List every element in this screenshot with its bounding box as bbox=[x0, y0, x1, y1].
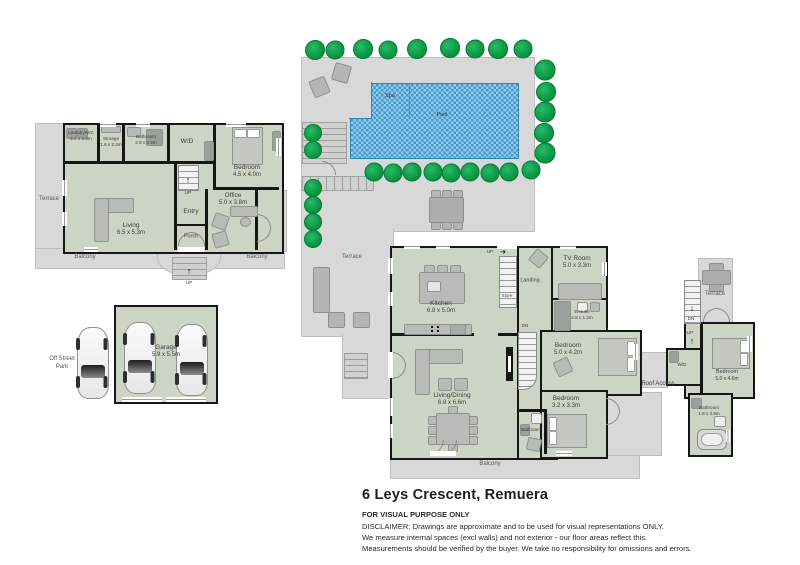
garage-door-line bbox=[166, 399, 206, 400]
window bbox=[62, 180, 67, 196]
tower-wd-label: W/D bbox=[678, 362, 687, 368]
chair-icon bbox=[431, 222, 441, 230]
armchair-icon bbox=[328, 312, 345, 328]
garage-door-line bbox=[122, 399, 162, 400]
room-label-ensuite: Ensuite2.8 x 1.2m bbox=[571, 309, 592, 321]
window bbox=[84, 247, 98, 252]
room-label-storage: Storage1.6 x 2.2m bbox=[100, 136, 121, 148]
window bbox=[388, 424, 393, 438]
up-label: UP bbox=[487, 249, 493, 255]
wall bbox=[167, 125, 170, 163]
outdoor-dining-table-icon bbox=[429, 197, 464, 223]
sofa-icon bbox=[558, 283, 602, 300]
room-label-living: Living6.5 x 5.3m bbox=[117, 222, 145, 238]
room-label-garage: Garage5.9 x 5.5m bbox=[152, 344, 180, 360]
wall bbox=[174, 163, 177, 250]
wardrobe-icon bbox=[204, 141, 214, 161]
car-icon bbox=[176, 324, 208, 396]
shower-icon bbox=[554, 301, 571, 331]
room-label-bedroom1: Bedroom4.5 x 4.0m bbox=[233, 164, 261, 180]
tree-icon bbox=[384, 164, 403, 183]
room-label-wd: W/D bbox=[181, 138, 194, 146]
tree-icon bbox=[305, 40, 325, 60]
stool-icon bbox=[437, 265, 448, 273]
tree-icon bbox=[365, 163, 384, 182]
pool-corner-deck bbox=[349, 82, 372, 119]
room-label-bathroom2: Bathroom bbox=[521, 427, 541, 433]
tree-icon bbox=[304, 179, 322, 197]
chair-icon bbox=[469, 426, 478, 435]
floorplan-page: Spa Pool Terrace ↑ bbox=[0, 0, 800, 565]
tree-icon bbox=[466, 40, 485, 59]
stool-icon bbox=[450, 265, 461, 273]
pillow-icon bbox=[549, 417, 557, 431]
tree-icon bbox=[304, 141, 322, 159]
stool-icon bbox=[424, 265, 435, 273]
porch-up-label: UP bbox=[186, 280, 192, 286]
tree-icon bbox=[514, 40, 533, 59]
footer-text-block: 6 Leys Crescent, Remuera FOR VISUAL PURP… bbox=[362, 487, 692, 555]
room-label-laundry: Laundry/WC2.2 x 2.3m bbox=[68, 130, 94, 142]
tree-icon bbox=[353, 39, 373, 59]
window bbox=[404, 244, 420, 249]
stove-icon bbox=[431, 326, 433, 328]
door-gap bbox=[430, 451, 456, 456]
room-label-bedroom-main: Bedroom5.0 x 4.2m bbox=[554, 342, 582, 358]
chair-icon bbox=[428, 426, 437, 435]
upper-terrace-label: Terrace bbox=[39, 196, 59, 204]
tree-icon bbox=[424, 163, 443, 182]
door-gap bbox=[178, 247, 204, 252]
wall bbox=[97, 125, 100, 163]
disclaimer-line: DISCLAIMER: Drawings are approximate and… bbox=[362, 522, 692, 531]
room-label-office: Office5.0 x 3.8m bbox=[219, 192, 247, 208]
window bbox=[633, 344, 638, 360]
room-label-bathroom-tower: Bathroom1.8 x 3.6m bbox=[698, 405, 719, 417]
tree-icon bbox=[500, 163, 519, 182]
room-label-tv: TV Room5.0 x 3.3m bbox=[563, 255, 591, 271]
chair-icon bbox=[453, 222, 463, 230]
tree-icon bbox=[535, 60, 556, 81]
chair-icon bbox=[469, 436, 478, 445]
up-arrow-icon: ↑ bbox=[187, 266, 192, 276]
tree-icon bbox=[481, 164, 500, 183]
right-arrow-icon: ➔ bbox=[500, 248, 506, 256]
tree-icon bbox=[379, 41, 398, 60]
office-chair-icon bbox=[240, 217, 251, 227]
bathtub-icon bbox=[697, 429, 727, 450]
tree-icon bbox=[461, 163, 480, 182]
off-street-park-label: Off Street Park bbox=[44, 356, 80, 372]
stairs-icon bbox=[344, 353, 368, 379]
pool bbox=[350, 83, 519, 159]
tree-icon bbox=[442, 164, 461, 183]
room-label-landing: Landing bbox=[520, 277, 539, 284]
toilet-icon bbox=[531, 413, 542, 424]
door-gap bbox=[388, 352, 393, 378]
tree-icon bbox=[326, 41, 345, 60]
sofa-icon bbox=[313, 267, 330, 313]
chair-icon bbox=[442, 222, 452, 230]
room-label-bathroom: Bathroom2.8 x 2.2m bbox=[135, 134, 156, 146]
window bbox=[560, 244, 576, 249]
armchair-icon bbox=[353, 312, 370, 328]
sink-icon bbox=[427, 281, 441, 292]
spa-label: Spa bbox=[385, 93, 395, 99]
sofa-icon bbox=[415, 349, 430, 395]
pool-label: Pool bbox=[436, 112, 447, 118]
room-label-bedroom-small: Bedroom3.2 x 3.3m bbox=[552, 395, 580, 411]
stairs-up-label: UP bbox=[185, 190, 191, 196]
terrace-table-icon bbox=[702, 270, 731, 285]
up-arrow-icon: ↑ bbox=[690, 336, 695, 346]
window bbox=[726, 430, 730, 442]
fireplace-slot bbox=[508, 356, 511, 372]
wall bbox=[205, 189, 208, 250]
window bbox=[747, 336, 752, 352]
wall bbox=[498, 333, 520, 336]
tree-icon bbox=[304, 230, 322, 248]
spa-divider bbox=[409, 84, 410, 118]
window bbox=[388, 292, 393, 306]
chair-icon bbox=[469, 416, 478, 425]
stairs-icon bbox=[499, 256, 517, 308]
wall bbox=[213, 187, 279, 190]
room-label-entry: Entry bbox=[183, 208, 198, 216]
wall bbox=[122, 125, 125, 163]
window bbox=[62, 212, 67, 226]
armchair-icon bbox=[438, 378, 452, 391]
tree-icon bbox=[535, 102, 556, 123]
window bbox=[136, 122, 150, 127]
pillow-icon bbox=[549, 431, 557, 445]
window bbox=[436, 244, 450, 249]
mid-terrace-label: Terrace bbox=[342, 254, 362, 262]
disclaimer-line: Measurements should be verified by the b… bbox=[362, 544, 692, 553]
armchair-icon bbox=[526, 437, 542, 453]
oven-icon bbox=[450, 324, 466, 335]
room-label-store: Store bbox=[502, 293, 513, 299]
window bbox=[100, 122, 116, 127]
window bbox=[276, 138, 281, 156]
balcony-left-label: Balcony bbox=[74, 254, 95, 262]
chair-icon bbox=[428, 416, 437, 425]
chair-icon bbox=[431, 190, 441, 198]
wall bbox=[176, 224, 206, 226]
down-arrow-icon: ↓ bbox=[690, 303, 695, 313]
tree-icon bbox=[522, 161, 541, 180]
dn-label: DN bbox=[522, 323, 529, 329]
armchair-icon bbox=[454, 378, 468, 391]
tree-icon bbox=[535, 143, 556, 164]
pillow-icon bbox=[234, 129, 247, 138]
sofa-icon bbox=[94, 198, 109, 242]
tree-icon bbox=[304, 213, 322, 231]
tree-icon bbox=[403, 163, 422, 182]
pillow-icon bbox=[740, 353, 748, 366]
wall bbox=[700, 324, 703, 393]
up-arrow-icon: ↑ bbox=[186, 175, 191, 185]
room-label-kitchen: Kitchen6.8 x 5.0m bbox=[427, 300, 455, 316]
purpose-note: FOR VISUAL PURPOSE ONLY bbox=[362, 510, 692, 519]
tree-icon bbox=[536, 82, 556, 102]
chair-icon bbox=[442, 190, 452, 198]
shelf-icon bbox=[101, 126, 121, 133]
tree-icon bbox=[304, 196, 322, 214]
tower-dn-label: DN bbox=[688, 316, 695, 322]
window bbox=[388, 258, 393, 274]
balcony-right-label: Balcony bbox=[246, 254, 267, 262]
wall bbox=[65, 161, 213, 164]
tree-icon bbox=[488, 39, 508, 59]
window bbox=[388, 398, 393, 416]
car-icon bbox=[77, 327, 109, 399]
room-label-living-dining: Living/Dining6.8 x 6.6m bbox=[433, 392, 470, 408]
chair-icon bbox=[453, 190, 463, 198]
tree-icon bbox=[534, 123, 554, 143]
room-label-bedroom-tower: Bedroom5.0 x 4.6m bbox=[715, 369, 738, 383]
disclaimer-line: We measure internal spaces (excl walls) … bbox=[362, 533, 692, 542]
pillow-icon bbox=[247, 129, 260, 138]
tree-icon bbox=[407, 39, 427, 59]
room-label-porch: Porch bbox=[184, 233, 198, 240]
tree-icon bbox=[304, 124, 322, 142]
window bbox=[226, 122, 246, 127]
roof-access-label: Roof Access bbox=[641, 381, 674, 389]
tree-icon bbox=[440, 38, 460, 58]
toilet-icon bbox=[714, 416, 726, 427]
main-balcony-label: Balcony bbox=[479, 461, 500, 469]
page-title: 6 Leys Crescent, Remuera bbox=[362, 487, 692, 503]
tower-terrace-label: Terrace bbox=[705, 291, 725, 299]
window bbox=[602, 262, 607, 276]
stairs-icon bbox=[518, 332, 537, 390]
wall bbox=[517, 409, 546, 412]
window bbox=[556, 451, 572, 456]
